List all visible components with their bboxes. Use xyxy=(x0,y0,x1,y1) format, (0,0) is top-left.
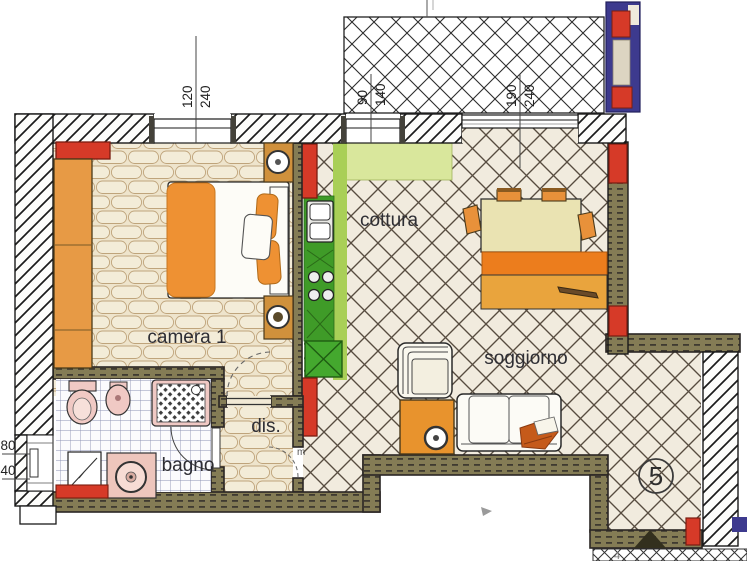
svg-text:4: 4 xyxy=(614,550,620,561)
svg-text:120: 120 xyxy=(180,85,195,108)
svg-text:soggiorno: soggiorno xyxy=(484,348,567,369)
svg-text:90: 90 xyxy=(355,90,370,105)
svg-text:240: 240 xyxy=(522,84,537,107)
svg-text:190: 190 xyxy=(504,84,519,107)
svg-text:bagno: bagno xyxy=(162,455,215,476)
svg-text:140: 140 xyxy=(373,83,388,106)
svg-text:40: 40 xyxy=(0,463,15,478)
svg-text:m: m xyxy=(297,447,305,458)
svg-text:80: 80 xyxy=(0,438,15,453)
svg-text:cottura: cottura xyxy=(360,210,419,231)
svg-text:dis.: dis. xyxy=(251,416,281,437)
svg-text:240: 240 xyxy=(198,85,213,108)
svg-text:5: 5 xyxy=(649,461,663,491)
svg-text:camera 1: camera 1 xyxy=(147,327,226,348)
